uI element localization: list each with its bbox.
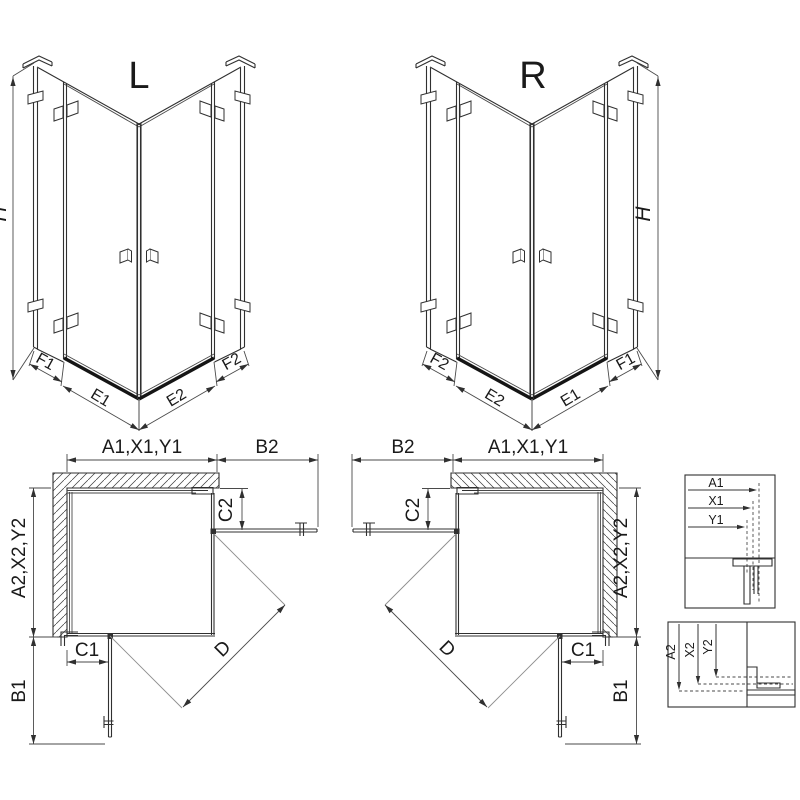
plan-view-left: A1,X1,Y1 B2 C2 A2,X2,Y2 C1 B1 D xyxy=(9,437,318,744)
iso-left-title: L xyxy=(128,55,149,97)
detail-x1-label: X1 xyxy=(708,494,723,508)
plan-right-depth-label: A2,X2,Y2 xyxy=(611,518,632,598)
detail-a2-label: A2 xyxy=(664,644,678,659)
detail-a1-label: A1 xyxy=(708,476,723,490)
iso-right-e2-label: E2 xyxy=(482,386,508,411)
technical-diagram: L H F1 E1 E2 F2 R H F2 E2 E1 F1 A1,X1,Y1… xyxy=(0,0,800,800)
plan-right-top-width-label: A1,X1,Y1 xyxy=(488,437,568,458)
detail-box-width: A1 X1 Y1 xyxy=(685,475,775,608)
detail-y1-label: Y1 xyxy=(708,513,723,527)
iso-left-height-label: H xyxy=(0,206,11,222)
iso-view-left: L H F1 E1 E2 F2 xyxy=(0,55,255,432)
plan-left-c1-label: C1 xyxy=(75,640,99,661)
iso-left-e2-label: E2 xyxy=(164,386,190,411)
plan-view-right: A1,X1,Y1 B2 C2 A2,X2,Y2 C1 B1 D xyxy=(352,437,641,744)
detail-box-depth: A2 X2 Y2 xyxy=(664,622,795,707)
detail-y2-label: Y2 xyxy=(701,639,715,654)
plan-left-b1-label: B1 xyxy=(9,679,30,702)
iso-right-e1-label: E1 xyxy=(558,386,584,411)
plan-right-b1-label: B1 xyxy=(611,679,632,702)
plan-left-top-width-label: A1,X1,Y1 xyxy=(102,437,182,458)
plan-left-b2-label: B2 xyxy=(255,437,278,458)
plan-left-c2-label: C2 xyxy=(216,498,237,522)
iso-view-right: R H F2 E2 E1 F1 xyxy=(416,55,661,432)
plan-right-c1-label: C1 xyxy=(571,640,595,661)
iso-right-title: R xyxy=(519,55,546,97)
plan-left-depth-label: A2,X2,Y2 xyxy=(9,518,30,598)
iso-right-height-label: H xyxy=(632,206,655,222)
iso-left-e1-label: E1 xyxy=(88,386,114,411)
iso-right-f2-label: F2 xyxy=(427,350,452,374)
iso-left-f1-label: F1 xyxy=(33,350,58,374)
iso-right-f1-label: F1 xyxy=(614,350,639,374)
detail-x2-label: X2 xyxy=(683,642,697,657)
plan-right-c2-label: C2 xyxy=(403,498,424,522)
plan-right-b2-label: B2 xyxy=(391,437,414,458)
iso-left-f2-label: F2 xyxy=(220,350,245,374)
